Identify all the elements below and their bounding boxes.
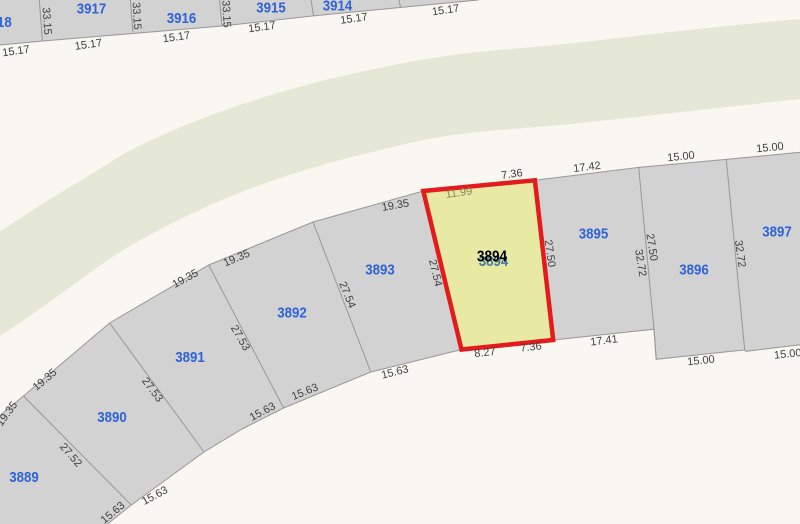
svg-text:3915: 3915 xyxy=(256,0,286,17)
svg-text:3916: 3916 xyxy=(167,10,197,27)
svg-text:3889: 3889 xyxy=(9,469,39,486)
svg-text:3895: 3895 xyxy=(579,226,609,243)
svg-text:3892: 3892 xyxy=(277,305,307,322)
svg-text:33.15: 33.15 xyxy=(130,2,143,30)
svg-text:33.15: 33.15 xyxy=(219,0,232,28)
svg-text:3894: 3894 xyxy=(477,249,508,266)
svg-text:8.27: 8.27 xyxy=(474,346,497,360)
svg-text:33.15: 33.15 xyxy=(40,7,54,35)
svg-text:3918: 3918 xyxy=(0,14,12,31)
svg-text:3897: 3897 xyxy=(762,224,792,241)
svg-text:3914: 3914 xyxy=(323,0,353,15)
svg-text:3893: 3893 xyxy=(365,262,395,279)
svg-text:7.36: 7.36 xyxy=(520,340,543,354)
svg-text:3917: 3917 xyxy=(77,1,107,18)
svg-text:3891: 3891 xyxy=(175,349,205,366)
svg-text:3890: 3890 xyxy=(97,409,127,426)
svg-text:3896: 3896 xyxy=(679,262,709,279)
